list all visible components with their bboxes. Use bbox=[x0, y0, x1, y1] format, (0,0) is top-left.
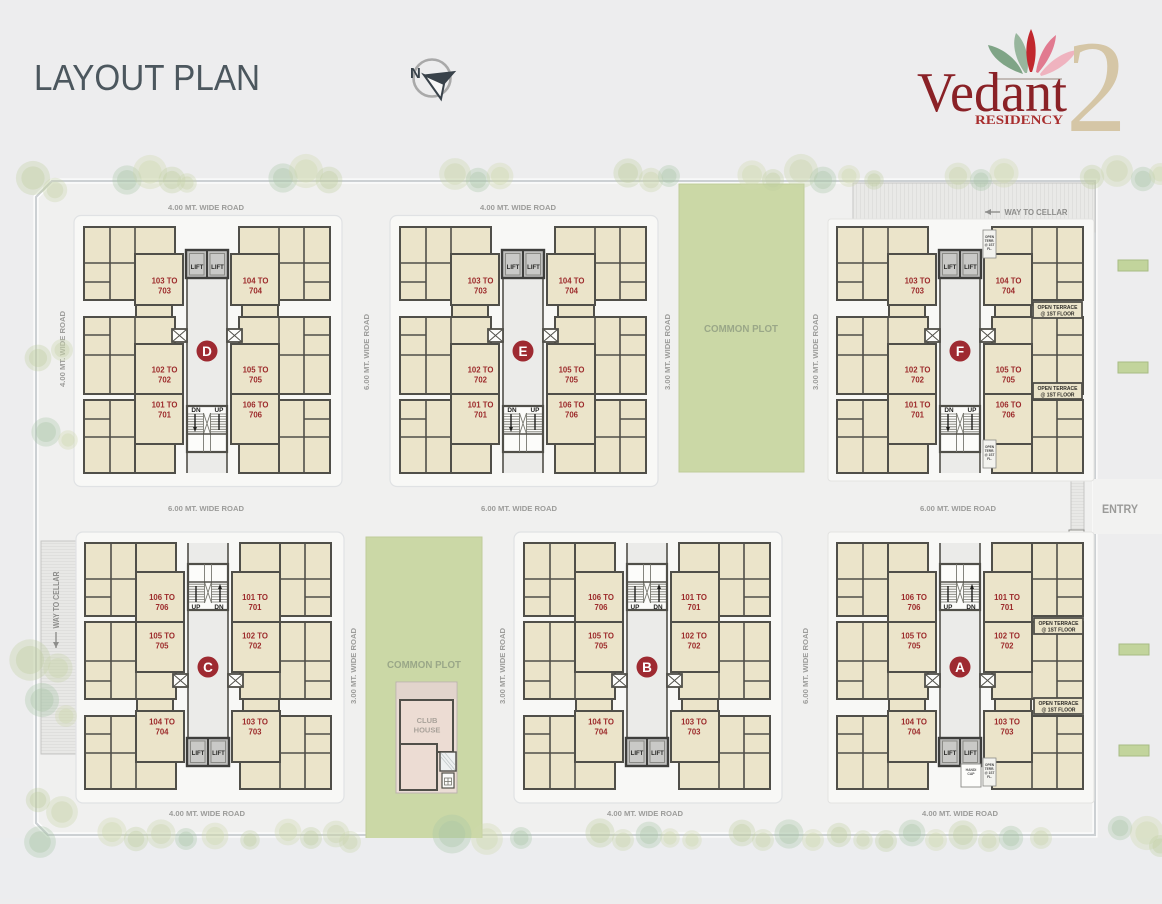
svg-text:LIFT: LIFT bbox=[944, 265, 957, 271]
svg-text:@ 1ST FLOOR: @ 1ST FLOOR bbox=[1041, 311, 1075, 317]
svg-text:LIFT: LIFT bbox=[964, 751, 977, 757]
svg-text:4.00 MT. WIDE ROAD: 4.00 MT. WIDE ROAD bbox=[607, 809, 683, 818]
svg-text:LIFT: LIFT bbox=[211, 265, 224, 271]
svg-text:WAY TO CELLAR: WAY TO CELLAR bbox=[52, 571, 61, 628]
svg-text:LIFT: LIFT bbox=[944, 751, 957, 757]
svg-text:UP: UP bbox=[944, 604, 954, 611]
svg-text:B: B bbox=[642, 660, 652, 675]
svg-text:@ 1ST FLOOR: @ 1ST FLOOR bbox=[1042, 707, 1076, 713]
svg-text:CLUBHOUSE: CLUBHOUSE bbox=[414, 716, 441, 735]
svg-text:F: F bbox=[956, 344, 964, 359]
svg-text:3.00 MT. WIDE ROAD: 3.00 MT. WIDE ROAD bbox=[663, 314, 672, 390]
svg-text:LIFT: LIFT bbox=[191, 265, 204, 271]
svg-text:LIFT: LIFT bbox=[507, 265, 520, 271]
svg-text:6.00 MT. WIDE ROAD: 6.00 MT. WIDE ROAD bbox=[362, 314, 371, 390]
svg-text:N: N bbox=[410, 65, 421, 82]
svg-text:DN: DN bbox=[191, 407, 201, 414]
svg-text:6.00 MT. WIDE ROAD: 6.00 MT. WIDE ROAD bbox=[481, 504, 557, 513]
svg-text:LIFT: LIFT bbox=[631, 751, 644, 757]
svg-text:E: E bbox=[518, 344, 527, 359]
svg-text:6.00 MT. WIDE ROAD: 6.00 MT. WIDE ROAD bbox=[168, 504, 244, 513]
svg-text:ENTRY: ENTRY bbox=[1102, 502, 1138, 516]
svg-text:DN: DN bbox=[944, 407, 954, 414]
svg-text:C: C bbox=[203, 660, 213, 675]
svg-text:COMMON PLOT: COMMON PLOT bbox=[387, 659, 462, 671]
svg-text:@ 1ST FLOOR: @ 1ST FLOOR bbox=[1041, 392, 1075, 398]
svg-text:LIFT: LIFT bbox=[964, 265, 977, 271]
svg-text:UP: UP bbox=[968, 407, 978, 414]
svg-text:LIFT: LIFT bbox=[527, 265, 540, 271]
svg-text:4.00 MT. WIDE ROAD: 4.00 MT. WIDE ROAD bbox=[922, 809, 998, 818]
svg-text:D: D bbox=[202, 344, 212, 359]
svg-text:LIFT: LIFT bbox=[651, 751, 664, 757]
svg-text:4.00 MT. WIDE ROAD: 4.00 MT. WIDE ROAD bbox=[168, 203, 244, 212]
svg-text:LAYOUT PLAN: LAYOUT PLAN bbox=[34, 57, 260, 98]
svg-text:3.00 MT. WIDE ROAD: 3.00 MT. WIDE ROAD bbox=[349, 628, 358, 704]
svg-text:3.00 MT. WIDE ROAD: 3.00 MT. WIDE ROAD bbox=[498, 628, 507, 704]
svg-text:A: A bbox=[955, 660, 965, 675]
svg-text:LIFT: LIFT bbox=[192, 751, 205, 757]
svg-text:UP: UP bbox=[531, 407, 541, 414]
svg-text:4.00 MT. WIDE ROAD: 4.00 MT. WIDE ROAD bbox=[480, 203, 556, 212]
svg-text:OPEN TERRACE: OPEN TERRACE bbox=[1038, 386, 1079, 392]
svg-text:UP: UP bbox=[215, 407, 225, 414]
svg-text:6.00 MT. WIDE ROAD: 6.00 MT. WIDE ROAD bbox=[920, 504, 996, 513]
svg-text:DN: DN bbox=[214, 604, 224, 611]
svg-text:UP: UP bbox=[631, 604, 641, 611]
svg-text:3.00 MT. WIDE ROAD: 3.00 MT. WIDE ROAD bbox=[811, 314, 820, 390]
svg-text:OPEN TERRACE: OPEN TERRACE bbox=[1039, 701, 1080, 707]
svg-text:OPEN TERRACE: OPEN TERRACE bbox=[1039, 621, 1080, 627]
svg-text:DN: DN bbox=[966, 604, 976, 611]
svg-text:WAY TO CELLAR: WAY TO CELLAR bbox=[1005, 208, 1068, 217]
svg-text:RESIDENCY: RESIDENCY bbox=[975, 113, 1063, 127]
svg-text:OPEN TERRACE: OPEN TERRACE bbox=[1038, 305, 1079, 311]
svg-text:UP: UP bbox=[192, 604, 202, 611]
svg-text:2: 2 bbox=[1066, 14, 1127, 160]
svg-text:6.00 MT. WIDE ROAD: 6.00 MT. WIDE ROAD bbox=[801, 628, 810, 704]
svg-text:DN: DN bbox=[653, 604, 663, 611]
svg-text:DN: DN bbox=[507, 407, 517, 414]
svg-text:@ 1ST FLOOR: @ 1ST FLOOR bbox=[1042, 627, 1076, 633]
svg-text:COMMON PLOT: COMMON PLOT bbox=[704, 323, 779, 335]
svg-text:LIFT: LIFT bbox=[212, 751, 225, 757]
svg-text:4.00 MT. WIDE ROAD: 4.00 MT. WIDE ROAD bbox=[169, 809, 245, 818]
